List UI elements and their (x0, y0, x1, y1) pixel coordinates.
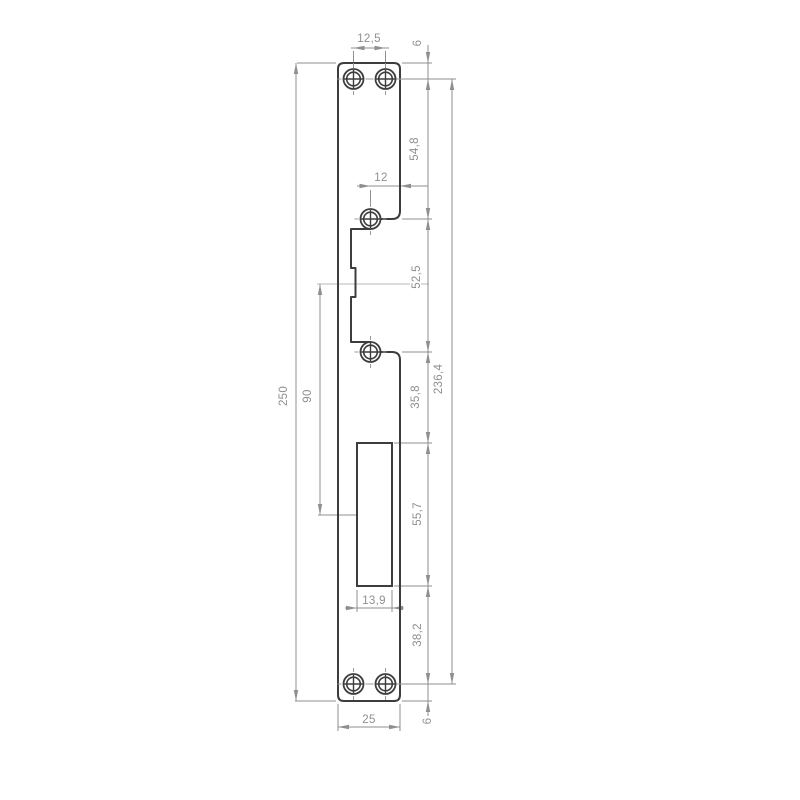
dimension-arrowhead (318, 504, 322, 515)
dimension-arrowhead (426, 52, 430, 63)
dimension-arrowhead (375, 46, 386, 50)
dim-cutout-to-bottom-holes-label: 38,2 (412, 623, 424, 647)
dimension-arrowhead (450, 673, 454, 684)
dim-top-hole-spacing-label: 12,5 (357, 33, 381, 45)
latch-cutout (357, 443, 392, 586)
dim-plate-width-label: 25 (362, 714, 375, 726)
dimension-arrowhead (294, 63, 298, 74)
dim-bottom-edge-to-holes-label: 6 (422, 718, 434, 725)
dimension-arrowhead (426, 352, 430, 363)
dimension-arrows (294, 46, 454, 729)
dimension-arrowhead (426, 673, 430, 684)
dim-plate-length-label: 250 (278, 386, 290, 406)
dimension-arrowhead (426, 341, 430, 352)
strike-plate-technical-drawing: 12,5 6 54,8 12 52,5 250 90 35,8 236,4 55… (0, 0, 800, 800)
dimension-arrowhead (318, 284, 322, 295)
dim-center-to-latch-ref-label: 90 (302, 389, 314, 402)
dim-top-edge-to-holes-label: 6 (412, 40, 424, 47)
dim-cutout-length-label: 55,7 (412, 502, 424, 526)
dimension-labels: 12,5 6 54,8 12 52,5 250 90 35,8 236,4 55… (278, 33, 445, 726)
dim-cutout-width-label: 13,9 (362, 595, 386, 607)
dimension-arrowhead (426, 586, 430, 597)
dim-mid-hole-to-edge-label: 12 (374, 172, 387, 184)
dimension-arrowhead (294, 690, 298, 701)
dimension-arrowhead (426, 219, 430, 230)
dimension-arrowhead (354, 46, 365, 50)
dimension-arrowhead (392, 606, 403, 610)
dimension-arrowhead (426, 79, 430, 90)
dimension-arrowhead (450, 79, 454, 90)
screw-hole (338, 668, 370, 700)
dimension-arrowhead (389, 725, 400, 729)
dim-top-holes-to-mid-hole-label: 54,8 (409, 137, 421, 161)
dimension-arrowhead (360, 184, 371, 188)
dimension-arrowhead (338, 725, 349, 729)
dimension-arrowhead (426, 701, 430, 712)
dimension-arrowhead (426, 432, 430, 443)
dimension-arrowhead (426, 575, 430, 586)
drawing-canvas: 12,5 6 54,8 12 52,5 250 90 35,8 236,4 55… (0, 0, 800, 800)
dim-mid-hole-to-cutout-label: 35,8 (410, 385, 422, 409)
dimension-arrowhead (426, 443, 430, 454)
dim-mid-hole-spacing-label: 52,5 (411, 265, 423, 289)
dimension-arrowhead (346, 606, 357, 610)
dimension-arrowhead (426, 208, 430, 219)
dimension-lines (295, 45, 456, 731)
dimension-arrowhead (400, 184, 411, 188)
dim-hole-span-total-label: 236,4 (433, 364, 445, 395)
